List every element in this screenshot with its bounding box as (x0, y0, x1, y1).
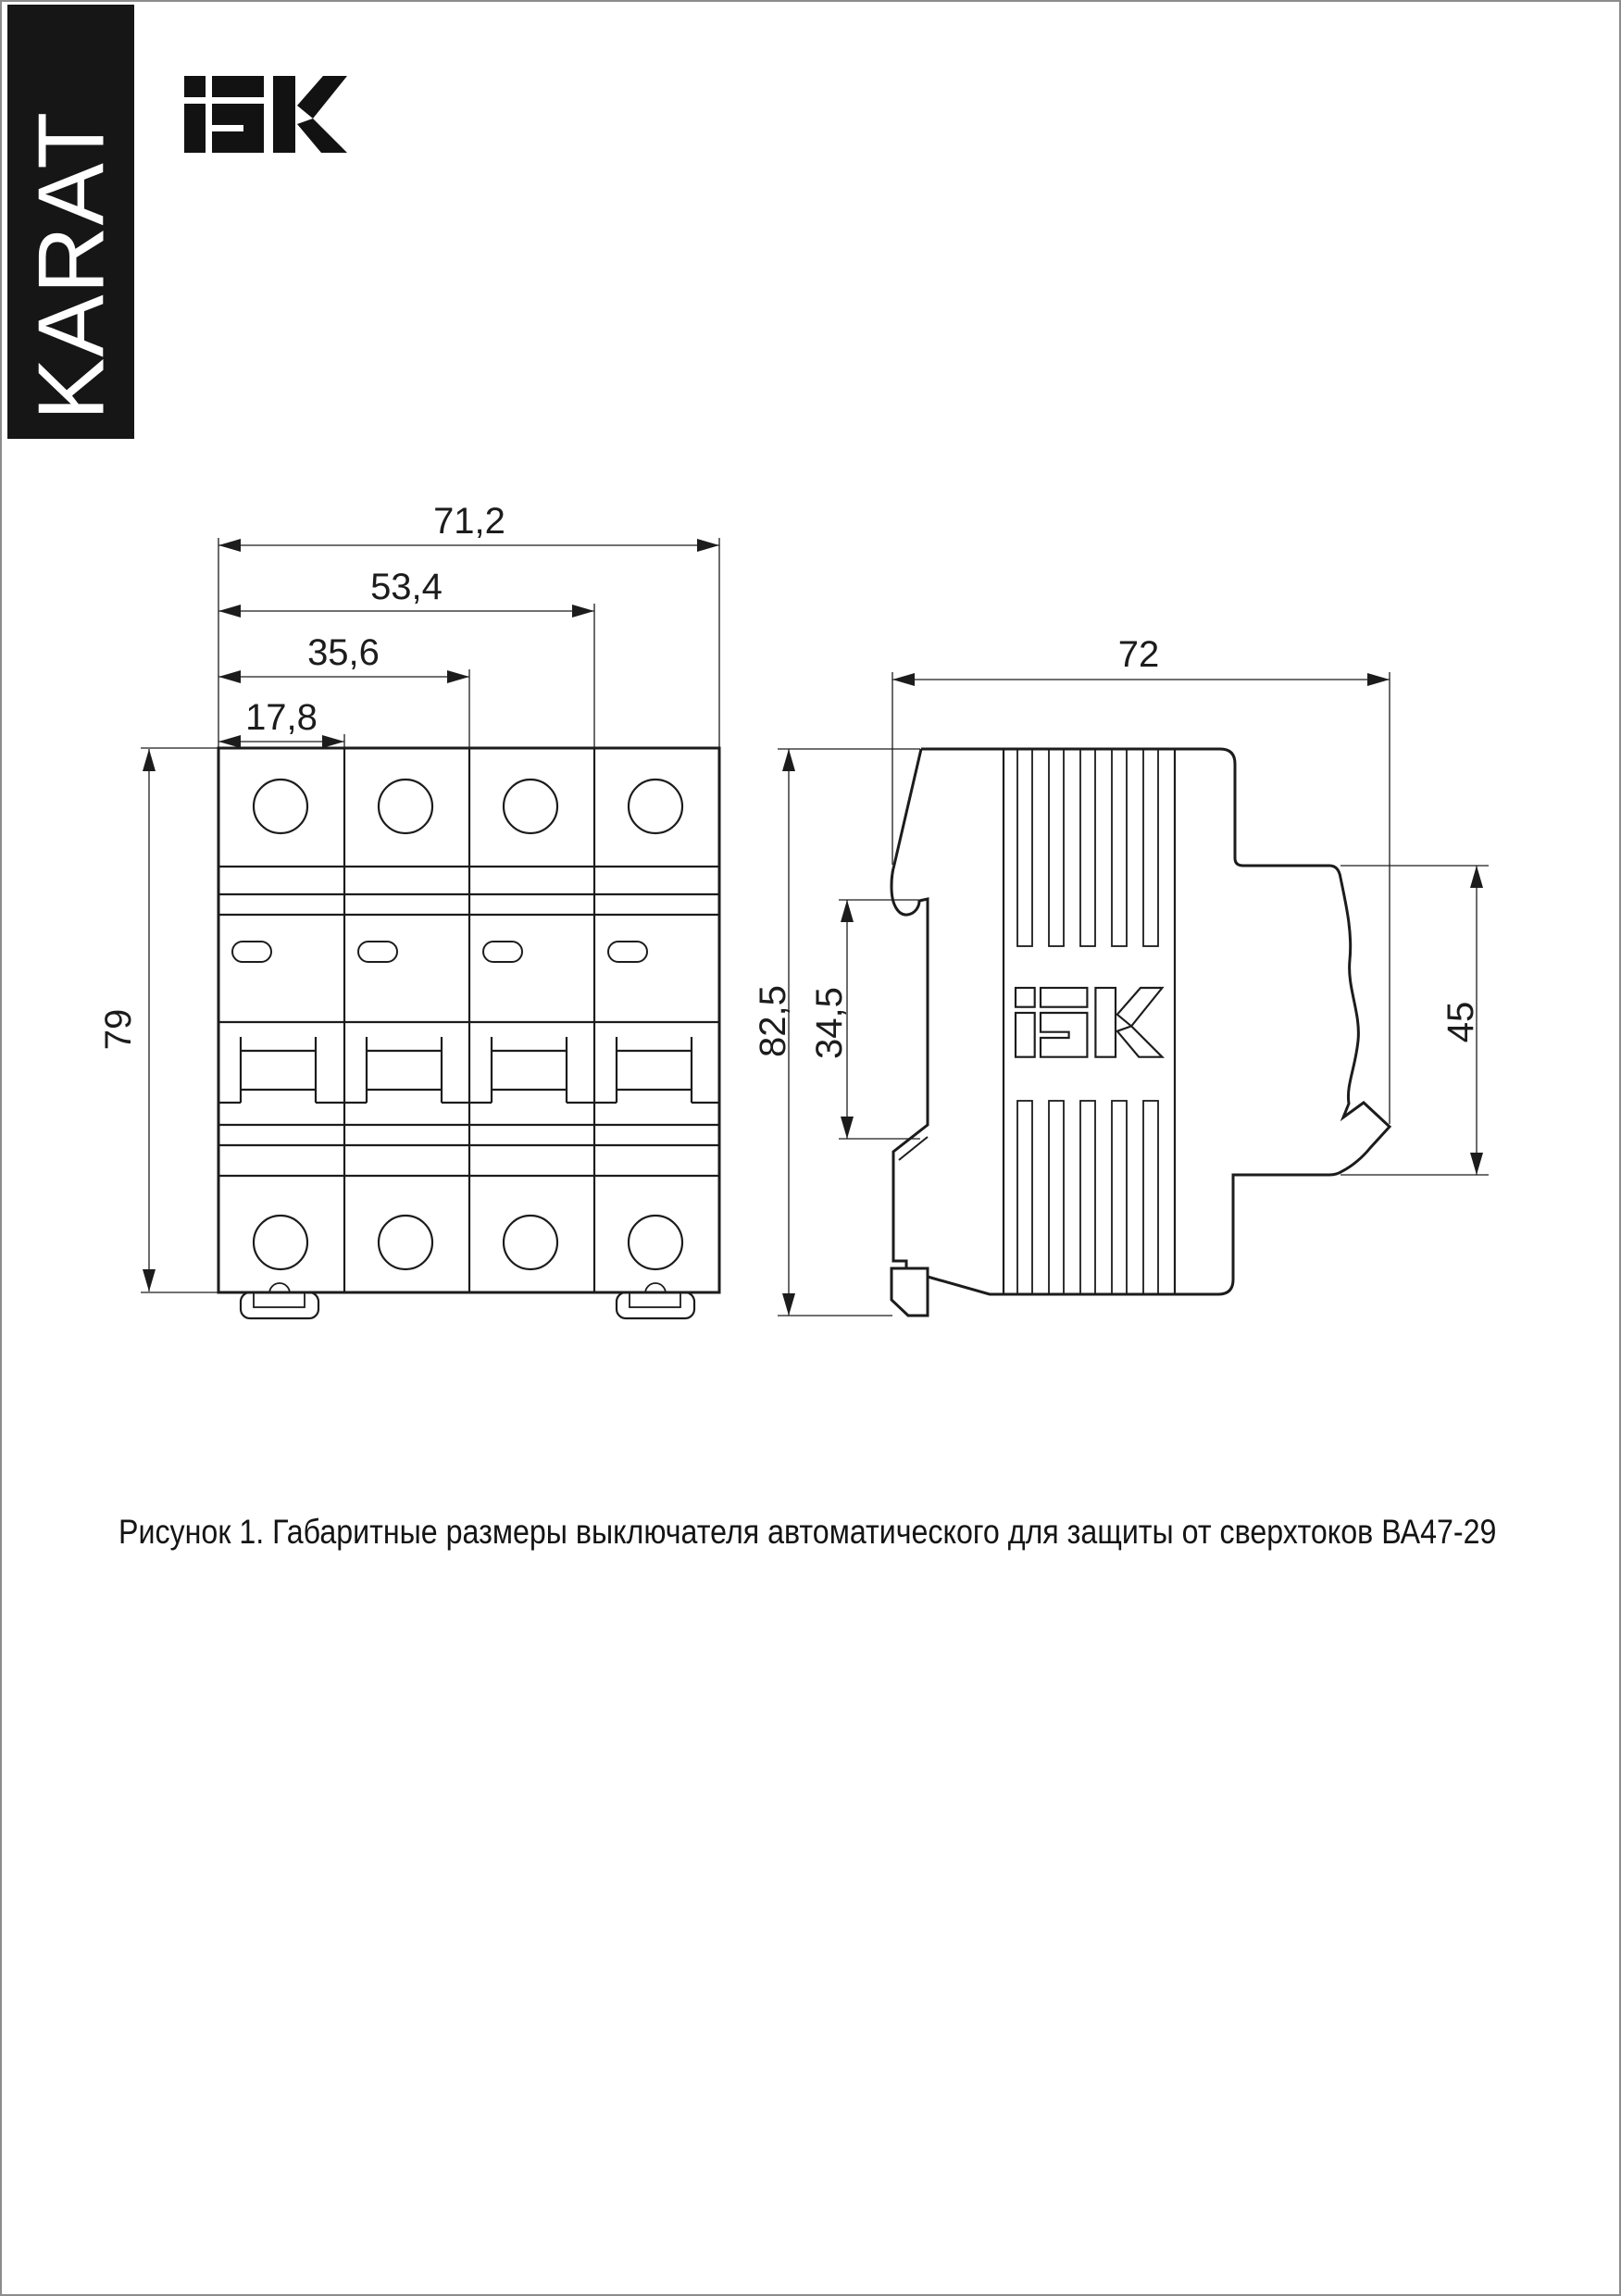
front-width-two-label: 35,6 (307, 632, 380, 673)
vent-slots-lower (1017, 1101, 1158, 1294)
figure-caption: Рисунок 1. Габаритные размеры выключател… (118, 1513, 1496, 1552)
side-dimensions (778, 672, 1489, 1316)
document-page: KARAT (0, 0, 1621, 2296)
iek-embossed-logo-icon (1016, 988, 1162, 1057)
side-recess-label: 34,5 (809, 987, 850, 1059)
vent-slots-upper (1017, 749, 1158, 946)
din-clips (241, 1283, 694, 1318)
side-dim-arrows (782, 673, 1483, 1316)
side-mount-label: 45 (1440, 1002, 1481, 1043)
front-height-label: 79 (98, 1009, 139, 1051)
front-width-three-label: 53,4 (370, 567, 443, 607)
front-view: 71,2 53,4 35,6 17,8 79 (98, 501, 719, 1318)
front-width-one-label: 17,8 (245, 697, 318, 738)
side-view: 72 82,5 34,5 45 (753, 634, 1489, 1316)
technical-drawing: 71,2 53,4 35,6 17,8 79 (2, 2, 1621, 2296)
side-height-total-label: 82,5 (753, 985, 793, 1057)
side-depth-label: 72 (1118, 634, 1160, 675)
label-windows (232, 942, 647, 962)
front-width-total-label: 71,2 (433, 501, 505, 542)
